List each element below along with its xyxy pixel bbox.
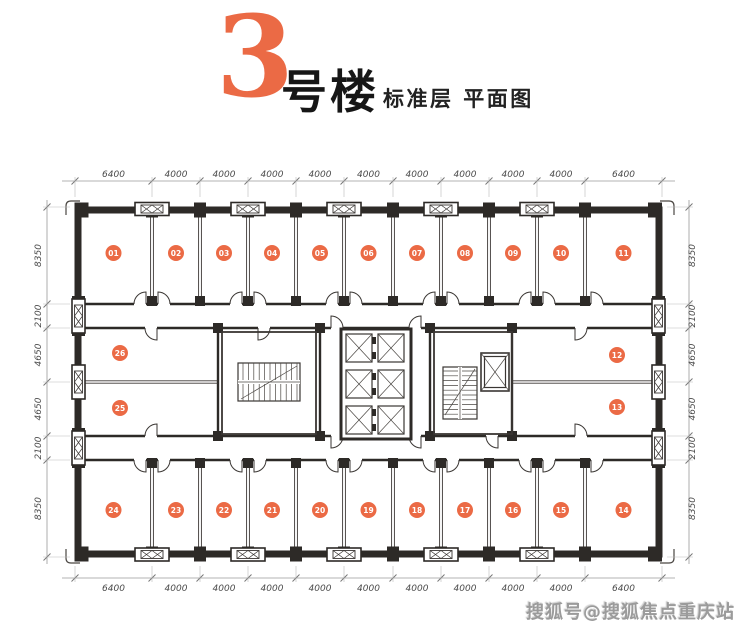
room-badge: 10 [553,245,569,261]
dimension-label: 4000 [309,584,332,594]
dimension-label: 4000 [309,170,332,180]
dimension-label: 4000 [454,170,477,180]
ac-unit-icon [135,203,169,216]
ac-unit-inner [75,371,83,393]
dimension-label: 4000 [502,584,525,594]
dimension-label: 2100 [688,436,698,459]
ac-unit-icon [520,203,554,216]
room-number: 11 [618,249,628,258]
door-gap [350,458,362,463]
room-number: 12 [612,351,622,360]
room-badge: 08 [457,245,473,261]
room-badge: 14 [616,502,632,518]
ac-unit-icon [424,203,458,216]
ac-unit-inner [141,551,163,559]
dimension-label: 6400 [102,170,125,180]
elevator-jamb [372,337,376,344]
ac-unit-icon [72,365,85,399]
dimension-label: 4000 [213,170,236,180]
dimension-label: 4000 [357,584,380,594]
column [388,458,398,468]
room-number: 24 [108,506,118,515]
dimension-label: 4650 [688,343,698,366]
dimension-label: 6400 [102,584,125,594]
dimension-label: 4000 [454,584,477,594]
column [388,296,398,306]
ac-unit-icon [72,299,85,333]
room-number: 22 [219,506,229,515]
ac-unit-inner [333,551,355,559]
dimension-label: 4650 [34,343,44,366]
ac-unit-icon [72,431,85,465]
column [243,458,253,468]
ac-unit-inner [655,305,663,327]
column [291,458,301,468]
ac-unit-icon [231,203,265,216]
elevator-jamb [372,409,376,416]
corner-column [75,203,89,218]
dimension-label: 4000 [165,170,188,180]
door-gap [519,458,531,463]
door-gap [543,302,555,307]
room-badge: 13 [609,399,625,415]
ac-unit-inner [655,437,663,459]
column [194,547,206,562]
dimension-label: 4000 [550,170,573,180]
door-gap [591,458,603,463]
room-number: 08 [460,249,470,258]
ac-unit-inner [237,205,259,213]
column [339,296,349,306]
door-gap [543,458,555,463]
ac-unit-icon [424,548,458,561]
door-gap [254,302,266,307]
column [290,203,302,218]
room-badge: 18 [409,502,425,518]
title-subtitle: 标准层 平面图 [383,83,534,113]
door-gap [230,302,242,307]
column [290,547,302,562]
column [387,547,399,562]
column [291,296,301,306]
room-badge: 03 [216,245,232,261]
column [532,296,542,306]
door-gap [158,458,170,463]
corner-column [75,547,89,562]
room-number: 23 [171,506,181,515]
room-badge: 15 [553,502,569,518]
room-number: 02 [171,249,181,258]
room-badge: 17 [457,502,473,518]
dimension-label: 4000 [261,584,284,594]
room-number: 07 [412,249,422,258]
dimension-label: 8350 [688,244,698,267]
elevator-bank [341,329,411,439]
dimension-label: 4000 [550,584,573,594]
room-badge: 11 [616,245,632,261]
room-badge: 07 [409,245,425,261]
ac-unit-inner [75,437,83,459]
column [436,458,446,468]
room-number: 19 [363,506,373,515]
room-number: 03 [219,249,229,258]
room-number: 14 [618,506,628,515]
column [195,458,205,468]
door-gap [447,458,459,463]
door-gap [591,302,603,307]
ac-unit-icon [231,548,265,561]
room-number: 26 [115,349,125,358]
door-gap [423,458,435,463]
column [147,458,157,468]
column [194,203,206,218]
ac-unit-icon [327,203,361,216]
ac-unit-icon [135,548,169,561]
dimension-label: 2100 [34,436,44,459]
column [580,458,590,468]
door-gap [326,458,338,463]
dimension-label: 4000 [406,584,429,594]
room-badge: 23 [168,502,184,518]
dimension-label: 4000 [213,584,236,594]
door-gap [134,458,146,463]
ac-unit-inner [141,205,163,213]
elevator-jamb [372,373,376,380]
room-number: 09 [508,249,518,258]
room-badge: 04 [264,245,280,261]
room-badge: 25 [112,400,128,416]
column [579,547,591,562]
dimension-label: 2100 [688,304,698,327]
dimension-label: 8350 [688,497,698,520]
dimension-label: 4000 [502,170,525,180]
room-badge: 06 [361,245,377,261]
room-number: 05 [315,249,325,258]
door-gap [258,326,270,331]
ac-unit-inner [526,205,548,213]
column [243,296,253,306]
elevator-jamb [372,388,376,395]
dimension-label: 4000 [261,170,284,180]
stairwell-left [222,332,316,434]
room-number: 18 [412,506,422,515]
corner-column [648,547,662,562]
room-badge: 26 [112,345,128,361]
door-gap [575,326,587,331]
room-number: 06 [363,249,373,258]
door-gap [447,302,459,307]
door-gap [575,434,587,439]
door-gap [145,434,157,439]
room-badge: 16 [505,502,521,518]
room-badge: 20 [312,502,328,518]
room-number: 20 [315,506,325,515]
column [195,296,205,306]
room-badge: 12 [609,347,625,363]
door-gap [350,302,362,307]
door-gap [254,458,266,463]
ac-unit-icon [652,365,665,399]
elevator-jamb [372,424,376,431]
room-number: 17 [460,506,470,515]
corner-column [648,203,662,218]
door-gap [326,302,338,307]
column [436,296,446,306]
column [580,296,590,306]
door-gap [519,302,531,307]
room-badge: 24 [106,502,122,518]
room-badge: 19 [361,502,377,518]
ac-unit-icon [652,431,665,465]
door-gap [134,302,146,307]
room-number: 01 [108,249,118,258]
ac-unit-inner [333,205,355,213]
room-badge: 01 [106,245,122,261]
ac-unit-icon [652,299,665,333]
ac-unit-inner [430,205,452,213]
room-number: 10 [556,249,566,258]
dimension-label: 4000 [406,170,429,180]
dimension-label: 4650 [34,397,44,420]
column [483,203,495,218]
ac-unit-inner [526,551,548,559]
dimension-label: 8350 [34,244,44,267]
title-building-suffix: 号楼 [281,56,379,122]
ac-unit-inner [655,371,663,393]
room-number: 13 [612,403,622,412]
column [484,458,494,468]
column [484,296,494,306]
dimension-label: 8350 [34,497,44,520]
ac-unit-inner [75,305,83,327]
stairwell-right [434,332,512,434]
room-number: 21 [267,506,277,515]
column [339,458,349,468]
dimension-label: 2100 [34,304,44,327]
ac-unit-inner [237,551,259,559]
door-gap [230,458,242,463]
column [483,547,495,562]
dimension-label: 4650 [688,397,698,420]
room-badge: 22 [216,502,232,518]
room-badge: 09 [505,245,521,261]
door-gap [423,302,435,307]
column [147,296,157,306]
room-badge: 05 [312,245,328,261]
door-gap [145,326,157,331]
watermark: 搜狐号@搜狐焦点重庆站 [526,598,735,624]
door-gap [158,302,170,307]
room-number: 15 [556,506,566,515]
room-badge: 21 [264,502,280,518]
column [532,458,542,468]
dimension-label: 4000 [357,170,380,180]
elevator-jamb [372,352,376,359]
dimension-label: 6400 [612,584,635,594]
room-number: 16 [508,506,518,515]
ac-unit-icon [520,548,554,561]
room-badge: 02 [168,245,184,261]
ac-unit-icon [327,548,361,561]
dimension-label: 6400 [612,170,635,180]
column [387,203,399,218]
ac-unit-inner [430,551,452,559]
room-number: 25 [115,404,125,413]
dimension-label: 4000 [165,584,188,594]
column [579,203,591,218]
room-number: 04 [267,249,277,258]
